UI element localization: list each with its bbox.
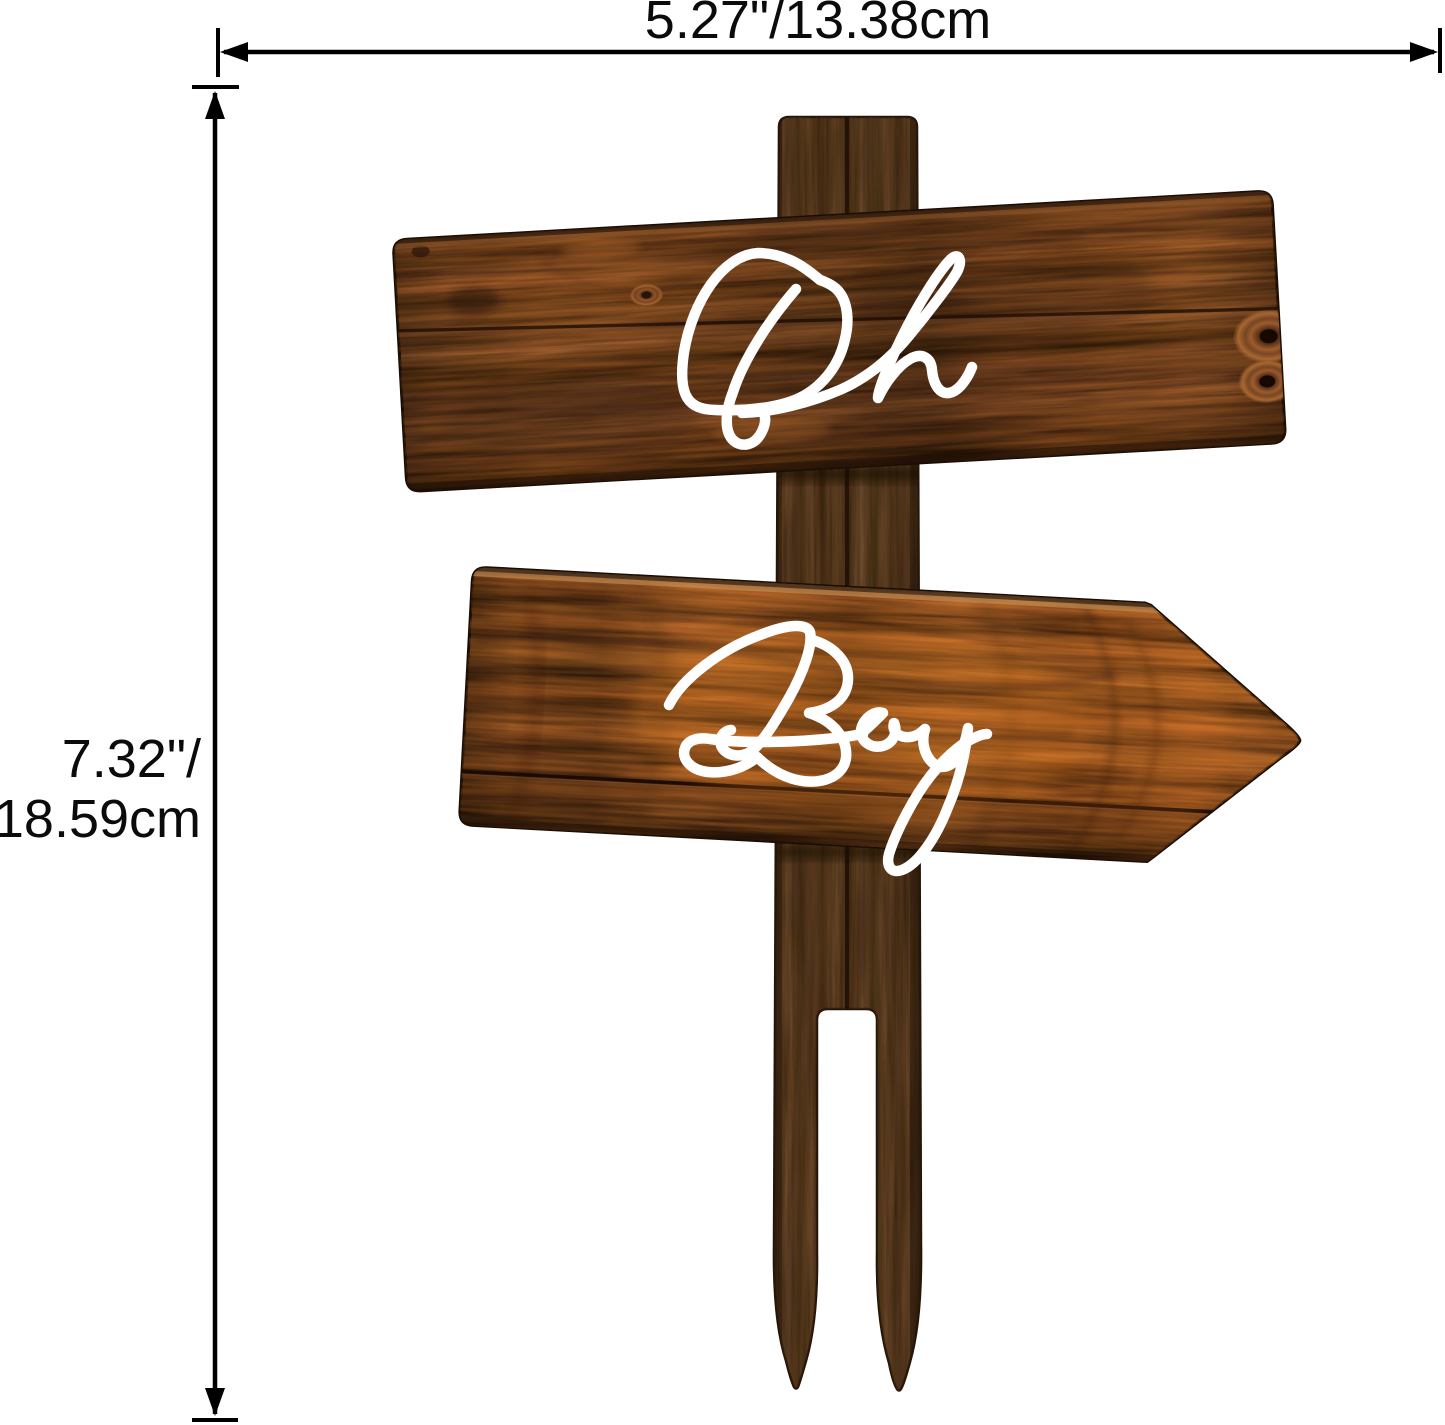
svg-text:7.32"/: 7.32"/ [62, 729, 201, 789]
svg-text:5.27"/13.38cm: 5.27"/13.38cm [645, 0, 991, 50]
svg-text:18.59cm: 18.59cm [0, 789, 201, 849]
